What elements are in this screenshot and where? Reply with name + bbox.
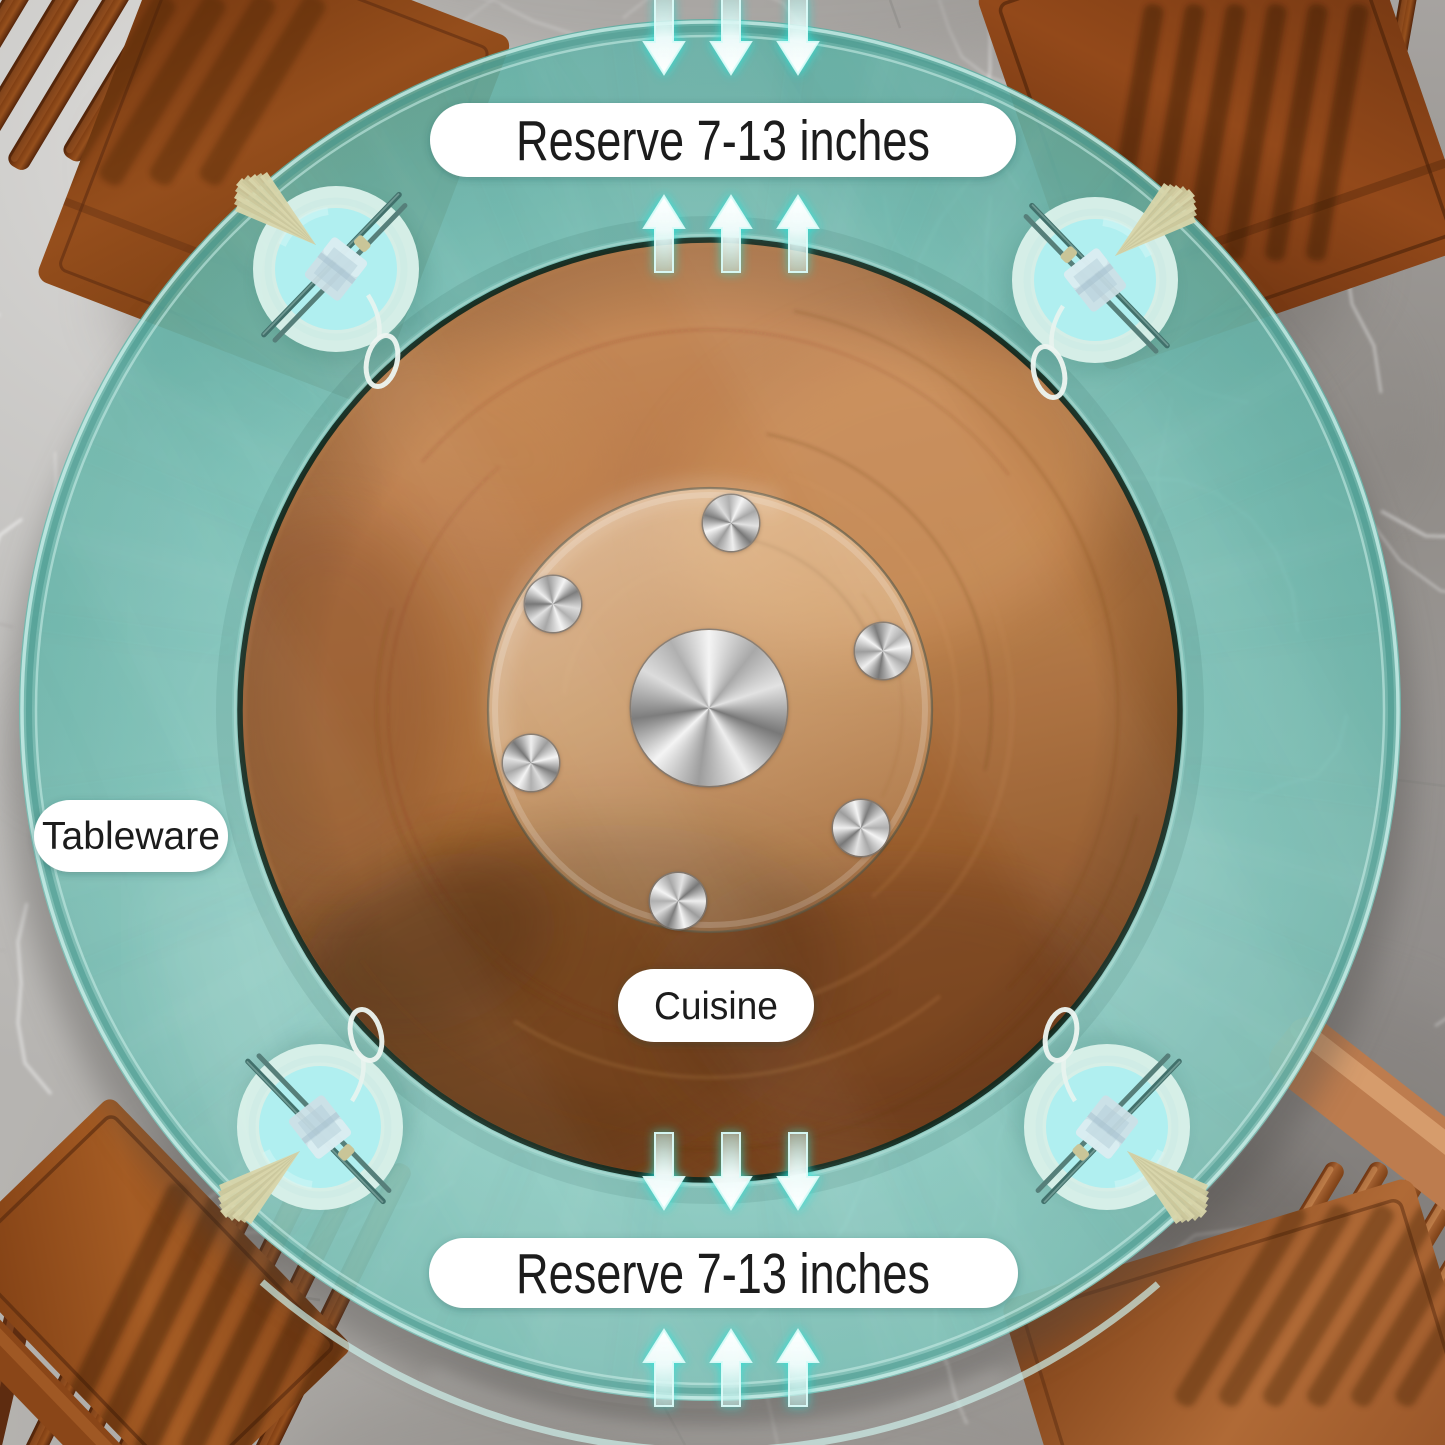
svg-text:Tableware: Tableware <box>42 815 220 858</box>
svg-text:Cuisine: Cuisine <box>654 985 778 1028</box>
svg-text:Reserve 7-13 inches: Reserve 7-13 inches <box>516 1242 930 1306</box>
svg-text:Reserve 7-13 inches: Reserve 7-13 inches <box>516 109 930 173</box>
